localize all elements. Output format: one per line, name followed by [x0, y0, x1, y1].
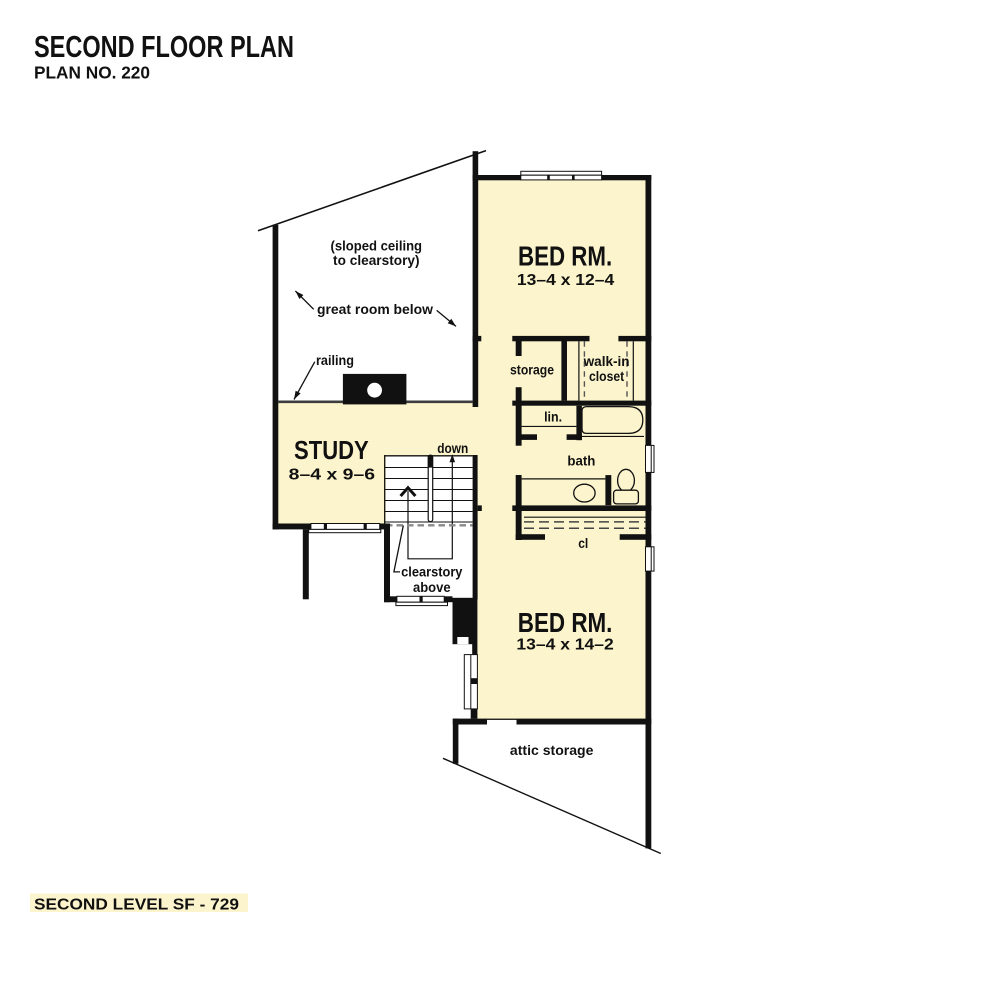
svg-text:SECOND LEVEL SF - 729: SECOND LEVEL SF - 729	[34, 897, 239, 914]
svg-text:bath: bath	[567, 453, 595, 468]
svg-text:railing: railing	[316, 353, 354, 368]
svg-text:clearstory: clearstory	[401, 565, 463, 580]
svg-text:closet: closet	[589, 369, 625, 384]
svg-text:cl: cl	[578, 536, 588, 551]
svg-text:BED RM.: BED RM.	[518, 607, 613, 638]
svg-text:walk-in: walk-in	[583, 354, 630, 369]
svg-text:SECOND FLOOR PLAN: SECOND FLOOR PLAN	[34, 29, 294, 64]
svg-text:13–4 x 12–4: 13–4 x 12–4	[517, 272, 615, 289]
svg-text:STUDY: STUDY	[294, 435, 369, 465]
svg-text:great room below: great room below	[317, 301, 433, 317]
svg-text:8–4 x 9–6: 8–4 x 9–6	[289, 467, 376, 484]
svg-text:lin.: lin.	[544, 410, 562, 425]
svg-text:(sloped ceiling: (sloped ceiling	[331, 239, 423, 254]
svg-text:to clearstory): to clearstory)	[333, 253, 420, 268]
svg-text:above: above	[413, 580, 451, 595]
svg-text:storage: storage	[510, 362, 554, 377]
svg-text:attic storage: attic storage	[510, 743, 594, 758]
svg-text:PLAN NO. 220: PLAN NO. 220	[34, 63, 150, 83]
svg-text:down: down	[437, 441, 468, 456]
svg-text:BED RM.: BED RM.	[518, 240, 612, 271]
svg-text:13–4 x 14–2: 13–4 x 14–2	[516, 636, 613, 653]
